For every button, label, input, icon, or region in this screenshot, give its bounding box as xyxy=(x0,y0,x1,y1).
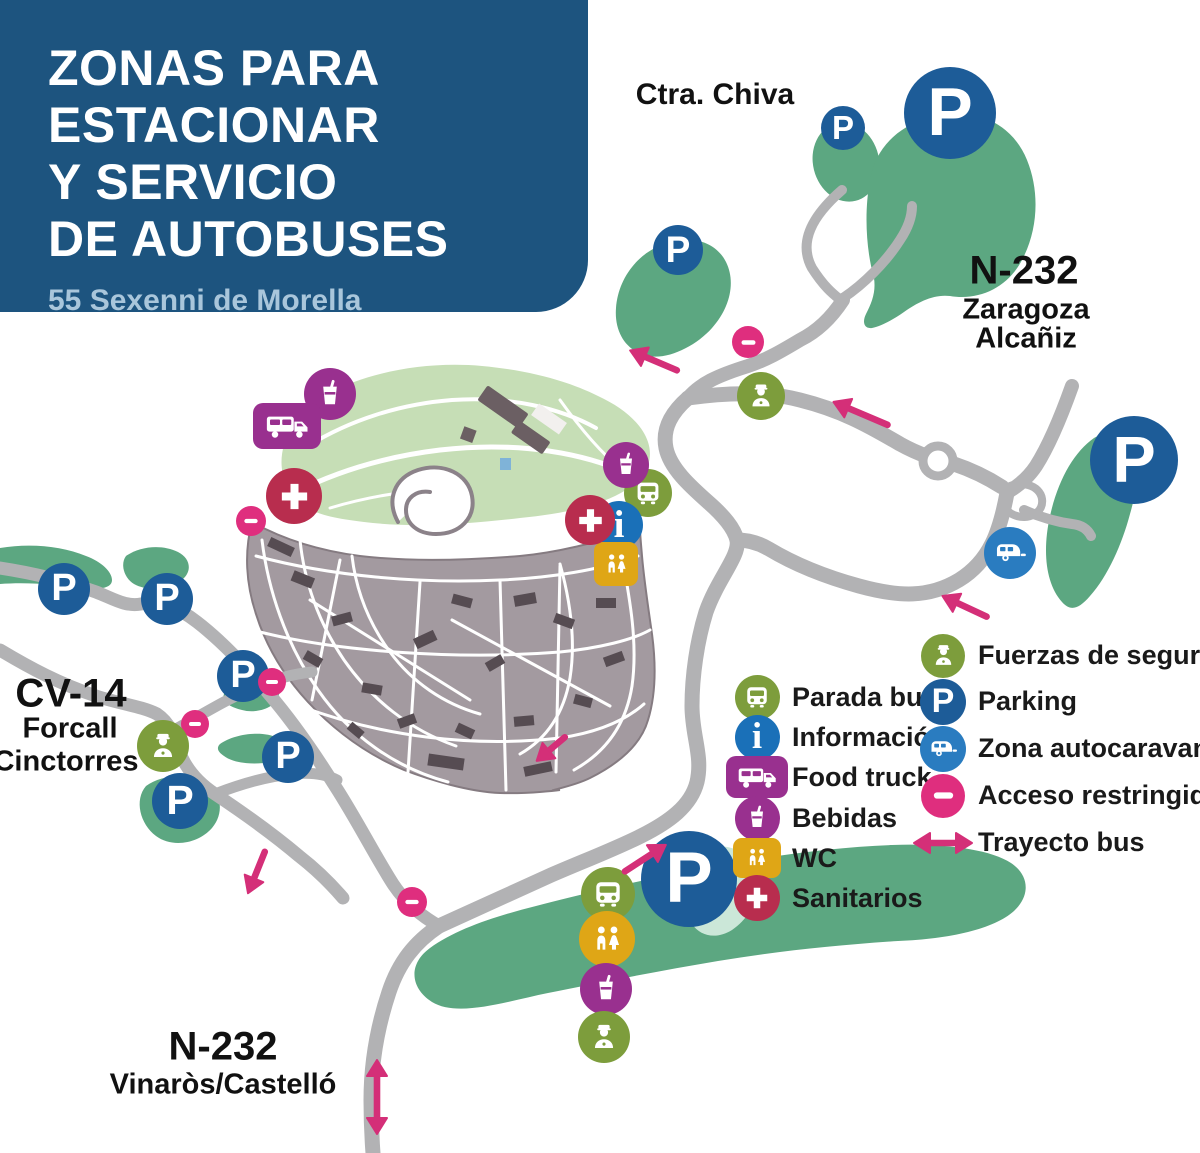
no-entry-icon xyxy=(402,892,422,912)
drinks-icon xyxy=(611,450,641,480)
bus-icon xyxy=(590,876,626,912)
legend-label: WC xyxy=(792,843,837,874)
sanitarios-marker xyxy=(266,468,322,524)
wc-marker xyxy=(594,542,638,586)
legend-item: Sanitarios xyxy=(731,878,923,918)
info-marker: i xyxy=(735,715,780,760)
security-officer-icon xyxy=(929,641,958,670)
road-label: Ctra. Chiva xyxy=(636,78,794,112)
bebidas-marker xyxy=(603,442,649,488)
bus-marker xyxy=(735,675,780,720)
sanitarios-marker xyxy=(565,495,615,545)
fuerzas-marker xyxy=(137,720,189,772)
no-entry-icon xyxy=(263,673,281,691)
road-label: Vinaròs/Castelló xyxy=(110,1069,337,1102)
food-truck-icon xyxy=(737,763,778,791)
wc-icon xyxy=(589,921,626,958)
parking-marker: P xyxy=(821,106,865,150)
no-entry-icon xyxy=(241,511,261,531)
no-entry-icon xyxy=(186,715,204,733)
wc-icon xyxy=(602,550,631,579)
legend-label: Zona autocaravanas xyxy=(978,733,1200,764)
roundabout xyxy=(923,446,953,476)
parking-marker: P xyxy=(653,225,703,275)
legend-label: Bebidas xyxy=(792,803,897,834)
legend-label: Parking xyxy=(978,686,1077,717)
header-title-line: ESTACIONAR xyxy=(48,97,588,154)
info-icon: i xyxy=(614,505,625,544)
fuerzas-marker xyxy=(921,634,965,678)
camper-van-icon xyxy=(993,536,1027,570)
legend-label: Sanitarios xyxy=(792,883,923,914)
parking-marker: P xyxy=(141,573,193,625)
parking-icon: P xyxy=(832,111,854,144)
legend-item: Trayecto bus xyxy=(917,819,1145,866)
info-icon: i xyxy=(752,718,762,755)
sanitarios-marker xyxy=(734,875,780,921)
noentry-marker xyxy=(258,668,286,696)
parking-icon: P xyxy=(230,656,255,694)
parking-marker: P xyxy=(38,563,90,615)
header-title-line: DE AUTOBUSES xyxy=(48,211,588,268)
parking-icon: P xyxy=(932,684,955,718)
parking-marker: P xyxy=(904,67,996,159)
noentry-marker xyxy=(397,887,427,917)
security-officer-icon xyxy=(146,729,180,763)
foodtruck-marker xyxy=(253,403,321,449)
legend-item: Bebidas xyxy=(731,798,897,838)
header-panel: ZONAS PARA ESTACIONAR Y SERVICIO DE AUTO… xyxy=(0,0,588,312)
no-entry-icon xyxy=(929,781,958,810)
road-label: Alcañiz xyxy=(975,323,1077,356)
legend-item: WC xyxy=(731,838,837,878)
medical-cross-icon xyxy=(574,504,607,537)
parking-icon: P xyxy=(154,579,179,617)
viewpoint-dot xyxy=(500,458,511,470)
wc-marker xyxy=(579,911,635,967)
legend-label: Parada bus xyxy=(792,682,938,713)
fuerzas-marker xyxy=(578,1011,630,1063)
medical-cross-icon xyxy=(276,478,313,515)
drinks-icon xyxy=(742,803,772,833)
parking-marker: P xyxy=(262,731,314,783)
legend-item: iInformación xyxy=(731,717,947,757)
road-label: Forcall xyxy=(22,713,117,746)
legend-item: Parada bus xyxy=(731,677,938,717)
road-label: CV-14 xyxy=(15,672,126,717)
bus-route-double-arrow-icon xyxy=(364,1058,390,1136)
caravan-marker xyxy=(920,726,966,772)
wc-marker xyxy=(733,838,781,878)
wc-icon xyxy=(741,845,773,871)
no-entry-icon xyxy=(738,332,759,353)
parking-icon: P xyxy=(51,569,76,607)
legend-item: Food truck xyxy=(731,757,932,797)
bus-route-arrow xyxy=(912,830,974,856)
map-canvas: ZONAS PARA ESTACIONAR Y SERVICIO DE AUTO… xyxy=(0,0,1200,1153)
parking-icon: P xyxy=(927,78,972,146)
parking-icon: P xyxy=(666,231,691,268)
fuerzas-marker xyxy=(737,372,785,420)
caravan-marker xyxy=(984,527,1036,579)
bus-route-arrow xyxy=(364,1058,390,1136)
drinks-icon xyxy=(589,972,623,1006)
parking-icon: P xyxy=(275,737,300,775)
road-label: Cinctorres xyxy=(0,746,139,779)
security-officer-icon xyxy=(587,1020,621,1054)
food-truck-icon xyxy=(265,411,310,441)
foodtruck-marker xyxy=(726,756,788,798)
parking-icon: P xyxy=(166,780,193,821)
medical-cross-icon xyxy=(742,883,772,913)
camper-van-icon xyxy=(928,734,958,764)
header-title-line: Y SERVICIO xyxy=(48,154,588,211)
road-label: N-232 xyxy=(169,1025,278,1070)
bebidas-marker xyxy=(580,963,632,1015)
security-officer-icon xyxy=(745,380,777,412)
legend-label: Trayecto bus xyxy=(978,827,1145,858)
noentry-marker xyxy=(236,506,266,536)
bus-route-double-arrow-icon xyxy=(912,830,974,856)
header-title-line: ZONAS PARA xyxy=(48,40,588,97)
parking-icon: P xyxy=(1112,427,1155,492)
noentry-marker xyxy=(732,326,764,358)
legend-label: Food truck xyxy=(792,762,932,793)
legend-label: Acceso restringido xyxy=(978,780,1200,811)
parking-marker: P xyxy=(1090,416,1178,504)
road-label: N-232 xyxy=(970,249,1079,294)
noentry-marker xyxy=(921,774,965,818)
legend-item: Acceso restringido xyxy=(917,772,1200,819)
legend-label: Fuerzas de seguridad xyxy=(978,640,1200,671)
legend-item: Zona autocaravanas xyxy=(917,725,1200,772)
bebidas-marker xyxy=(735,796,780,841)
legend-item: Fuerzas de seguridad xyxy=(917,632,1200,679)
legend-item: PParking xyxy=(917,678,1077,725)
bus-icon xyxy=(742,682,772,712)
parking-marker: P xyxy=(152,773,208,829)
parking-marker: P xyxy=(920,679,966,725)
header-subtitle: 55 Sexenni de Morella xyxy=(48,284,588,318)
